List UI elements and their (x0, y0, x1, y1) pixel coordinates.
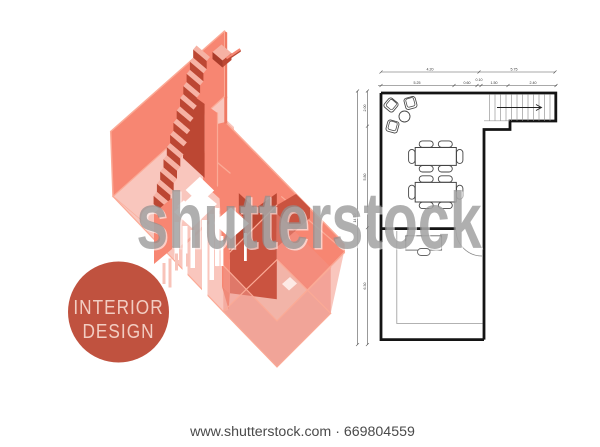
svg-text:2.00: 2.00 (363, 105, 367, 112)
svg-text:www.shutterstock.com · 6698045: www.shutterstock.com · 669804559 (189, 424, 415, 440)
svg-text:5.25: 5.25 (414, 81, 421, 85)
svg-text:DESIGN: DESIGN (82, 321, 154, 344)
svg-text:1.50: 1.50 (491, 81, 498, 85)
svg-text:INTERIOR: INTERIOR (73, 297, 163, 320)
svg-text:0.60: 0.60 (464, 81, 471, 85)
svg-text:2.40: 2.40 (530, 81, 537, 85)
svg-text:0.10: 0.10 (476, 78, 483, 82)
svg-text:shutterstock: shutterstock (136, 176, 482, 266)
svg-text:4.20: 4.20 (427, 68, 434, 72)
svg-text:5.75: 5.75 (511, 68, 518, 72)
svg-text:6.30: 6.30 (363, 283, 367, 290)
